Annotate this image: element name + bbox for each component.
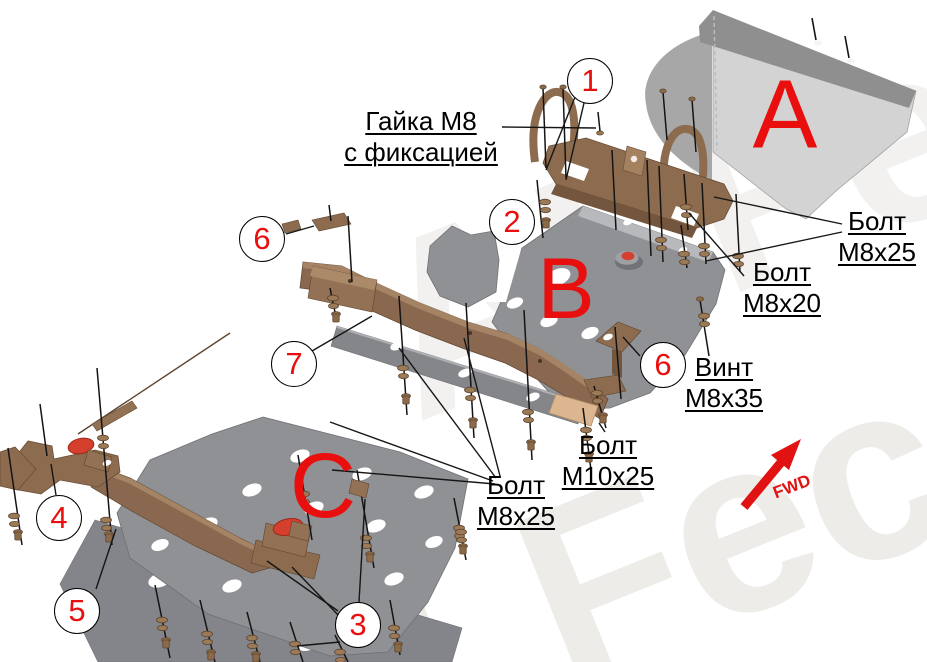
bracket-6-left <box>282 205 351 233</box>
label-line: с фиксацией <box>344 137 498 168</box>
label-nut-m8: Гайка М8 с фиксацией <box>344 106 498 167</box>
label-line: Винт <box>685 352 763 383</box>
label-line: М8х20 <box>743 288 821 319</box>
label-bolt-m8x25-top: Болт М8х25 <box>838 206 916 267</box>
label-line: М8х25 <box>838 237 916 268</box>
label-bolt-m10x25: Болт М10х25 <box>562 430 655 491</box>
label-bolt-m8x25-bottom: Болт М8х25 <box>477 470 555 531</box>
callout-2: 2 <box>489 199 535 245</box>
long-rod-body <box>92 401 137 431</box>
callout-3: 3 <box>335 602 381 648</box>
label-screw-m8x35: Винт М8х35 <box>685 352 763 413</box>
bolt-pin <box>845 36 849 58</box>
leader-nut-m8 <box>502 127 596 128</box>
label-line: Гайка М8 <box>344 106 498 137</box>
plate-letter-a: A <box>753 66 818 163</box>
plate-letter-c: C <box>290 440 356 532</box>
label-line: М8х35 <box>685 383 763 414</box>
diagram-stage: ALFeco ALFeco <box>0 0 927 662</box>
label-bolt-m8x20: Болт М8х20 <box>743 257 821 318</box>
label-line: Болт <box>743 257 821 288</box>
callout-6-left: 6 <box>239 216 285 262</box>
callout-4: 4 <box>36 495 82 541</box>
tab-hole <box>631 156 637 162</box>
plate-hole <box>847 59 855 64</box>
bolt-pin <box>812 18 816 40</box>
beam-hole <box>538 359 542 363</box>
nut <box>597 131 604 135</box>
label-line: Болт <box>562 430 655 461</box>
plate-b-wing <box>427 226 499 307</box>
plate-letter-b: B <box>537 246 594 332</box>
callout-6-right: 6 <box>640 342 686 388</box>
callout-1: 1 <box>567 58 613 104</box>
label-line: М8х25 <box>477 501 555 532</box>
callout-5: 5 <box>54 588 100 634</box>
drain-plug-cap <box>622 252 635 260</box>
callout-7: 7 <box>271 341 317 387</box>
label-line: М10х25 <box>562 461 655 492</box>
label-line: Болт <box>477 470 555 501</box>
plate-hole <box>814 41 822 46</box>
label-line: Болт <box>838 206 916 237</box>
